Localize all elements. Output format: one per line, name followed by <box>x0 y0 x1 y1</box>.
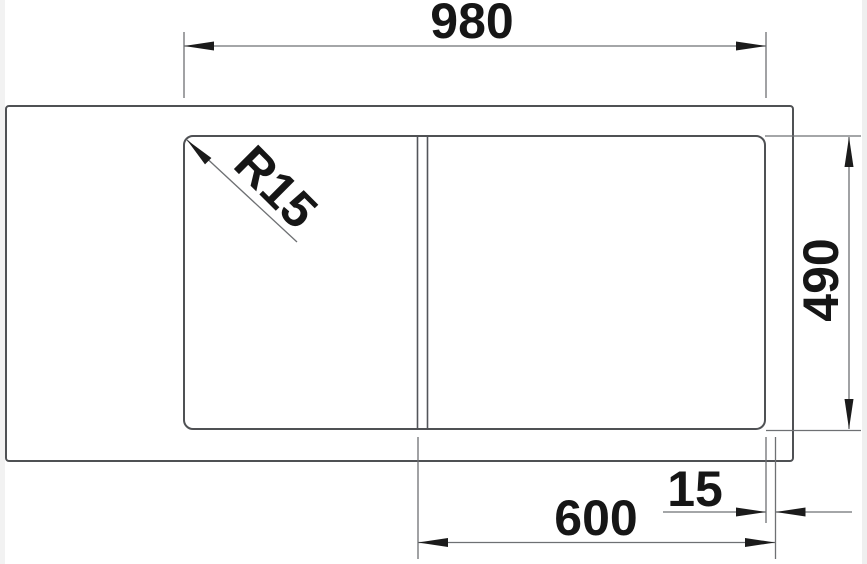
clearance-label: 15 <box>667 464 723 514</box>
arrowhead-down <box>845 399 854 429</box>
arrowhead-up <box>845 137 854 167</box>
arrowhead-right <box>736 42 766 51</box>
technical-drawing-canvas: 980 490 600 15 R15 <box>0 0 867 564</box>
arrowhead-left <box>184 42 214 51</box>
arrowhead-left <box>418 538 448 547</box>
overall-width-label: 980 <box>430 0 513 46</box>
arrowhead-pointing-right <box>736 508 766 517</box>
arrowhead-pointing-left <box>776 508 806 517</box>
arrowhead-to-corner <box>187 140 211 164</box>
arrowhead-right <box>745 538 775 547</box>
overall-depth-label: 490 <box>796 238 846 321</box>
worktop-outline <box>6 106 793 461</box>
bowl-section-width-label: 600 <box>554 493 637 543</box>
sink-drawing <box>0 0 867 564</box>
